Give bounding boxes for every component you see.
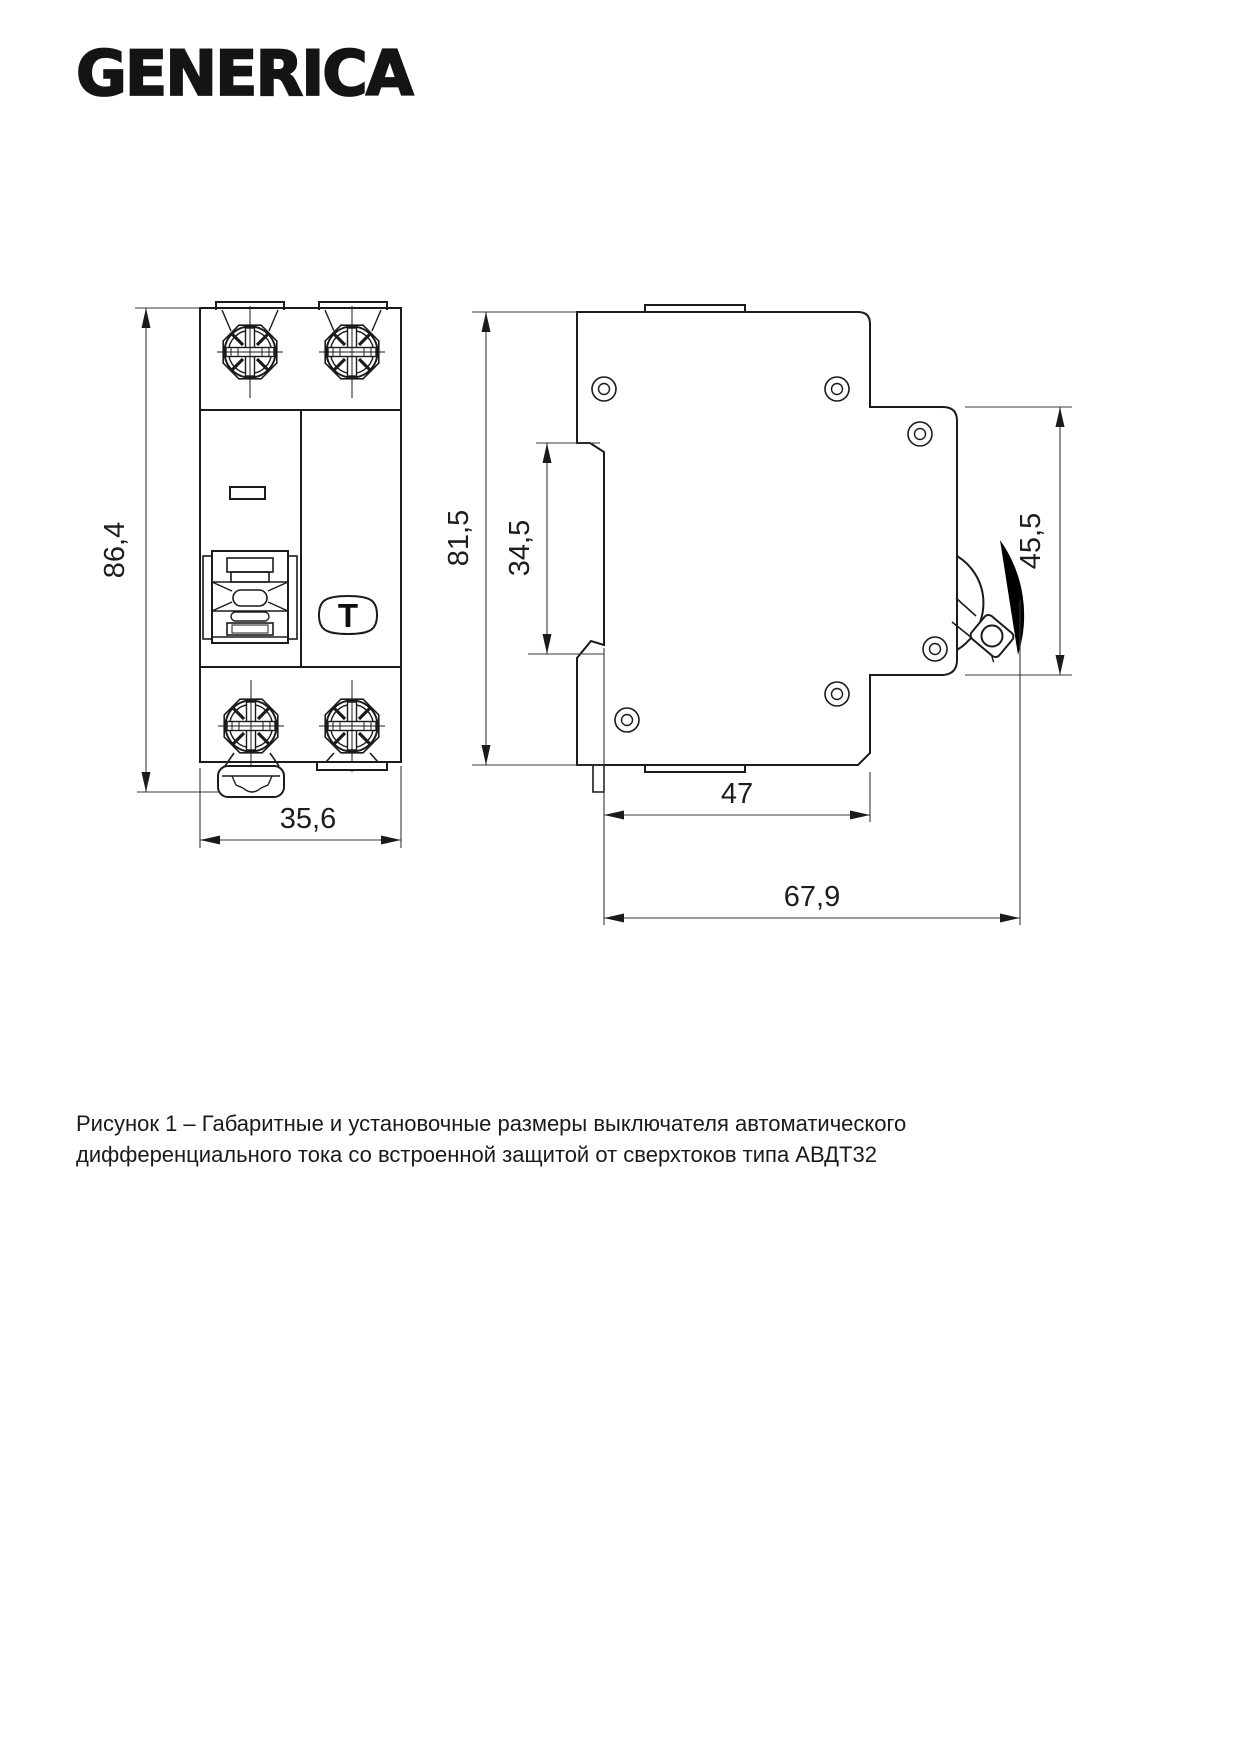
dim-label-total-depth: 67,9 xyxy=(784,881,840,913)
test-button-label: T xyxy=(338,597,358,634)
din-clip xyxy=(218,766,284,797)
technical-drawing: T xyxy=(0,0,1238,980)
dim-label-din-slot: 34,5 xyxy=(504,520,536,576)
side-view xyxy=(577,305,1024,792)
din-latch-tail xyxy=(593,765,604,792)
front-view: T xyxy=(200,302,401,797)
top-tab xyxy=(645,305,745,312)
terminal-foot xyxy=(317,762,387,770)
dim-label-body-depth: 47 xyxy=(721,778,753,810)
breaker-body-side xyxy=(577,312,957,765)
datasheet-page: { "logo": { "text": "GENERICA" }, "dimen… xyxy=(0,0,1238,1757)
figure-caption-line1: Рисунок 1 – Габаритные и установочные ра… xyxy=(76,1108,956,1139)
toggle-lever xyxy=(203,551,297,643)
dim-body-depth: 47 xyxy=(604,772,870,822)
dim-label-panel-height: 45,5 xyxy=(1015,513,1047,569)
dim-label-front-width: 35,6 xyxy=(280,803,336,835)
dim-din-slot: 34,5 xyxy=(504,443,604,654)
bottom-tab xyxy=(645,765,745,772)
dim-label-side-height: 81,5 xyxy=(443,510,475,566)
figure-caption: Рисунок 1 – Габаритные и установочные ра… xyxy=(76,1108,956,1170)
dim-label-front-height: 86,4 xyxy=(99,522,131,578)
toggle-handle-side xyxy=(952,540,1024,662)
figure-caption-line2: дифференциального тока со встроенной защ… xyxy=(76,1139,956,1170)
